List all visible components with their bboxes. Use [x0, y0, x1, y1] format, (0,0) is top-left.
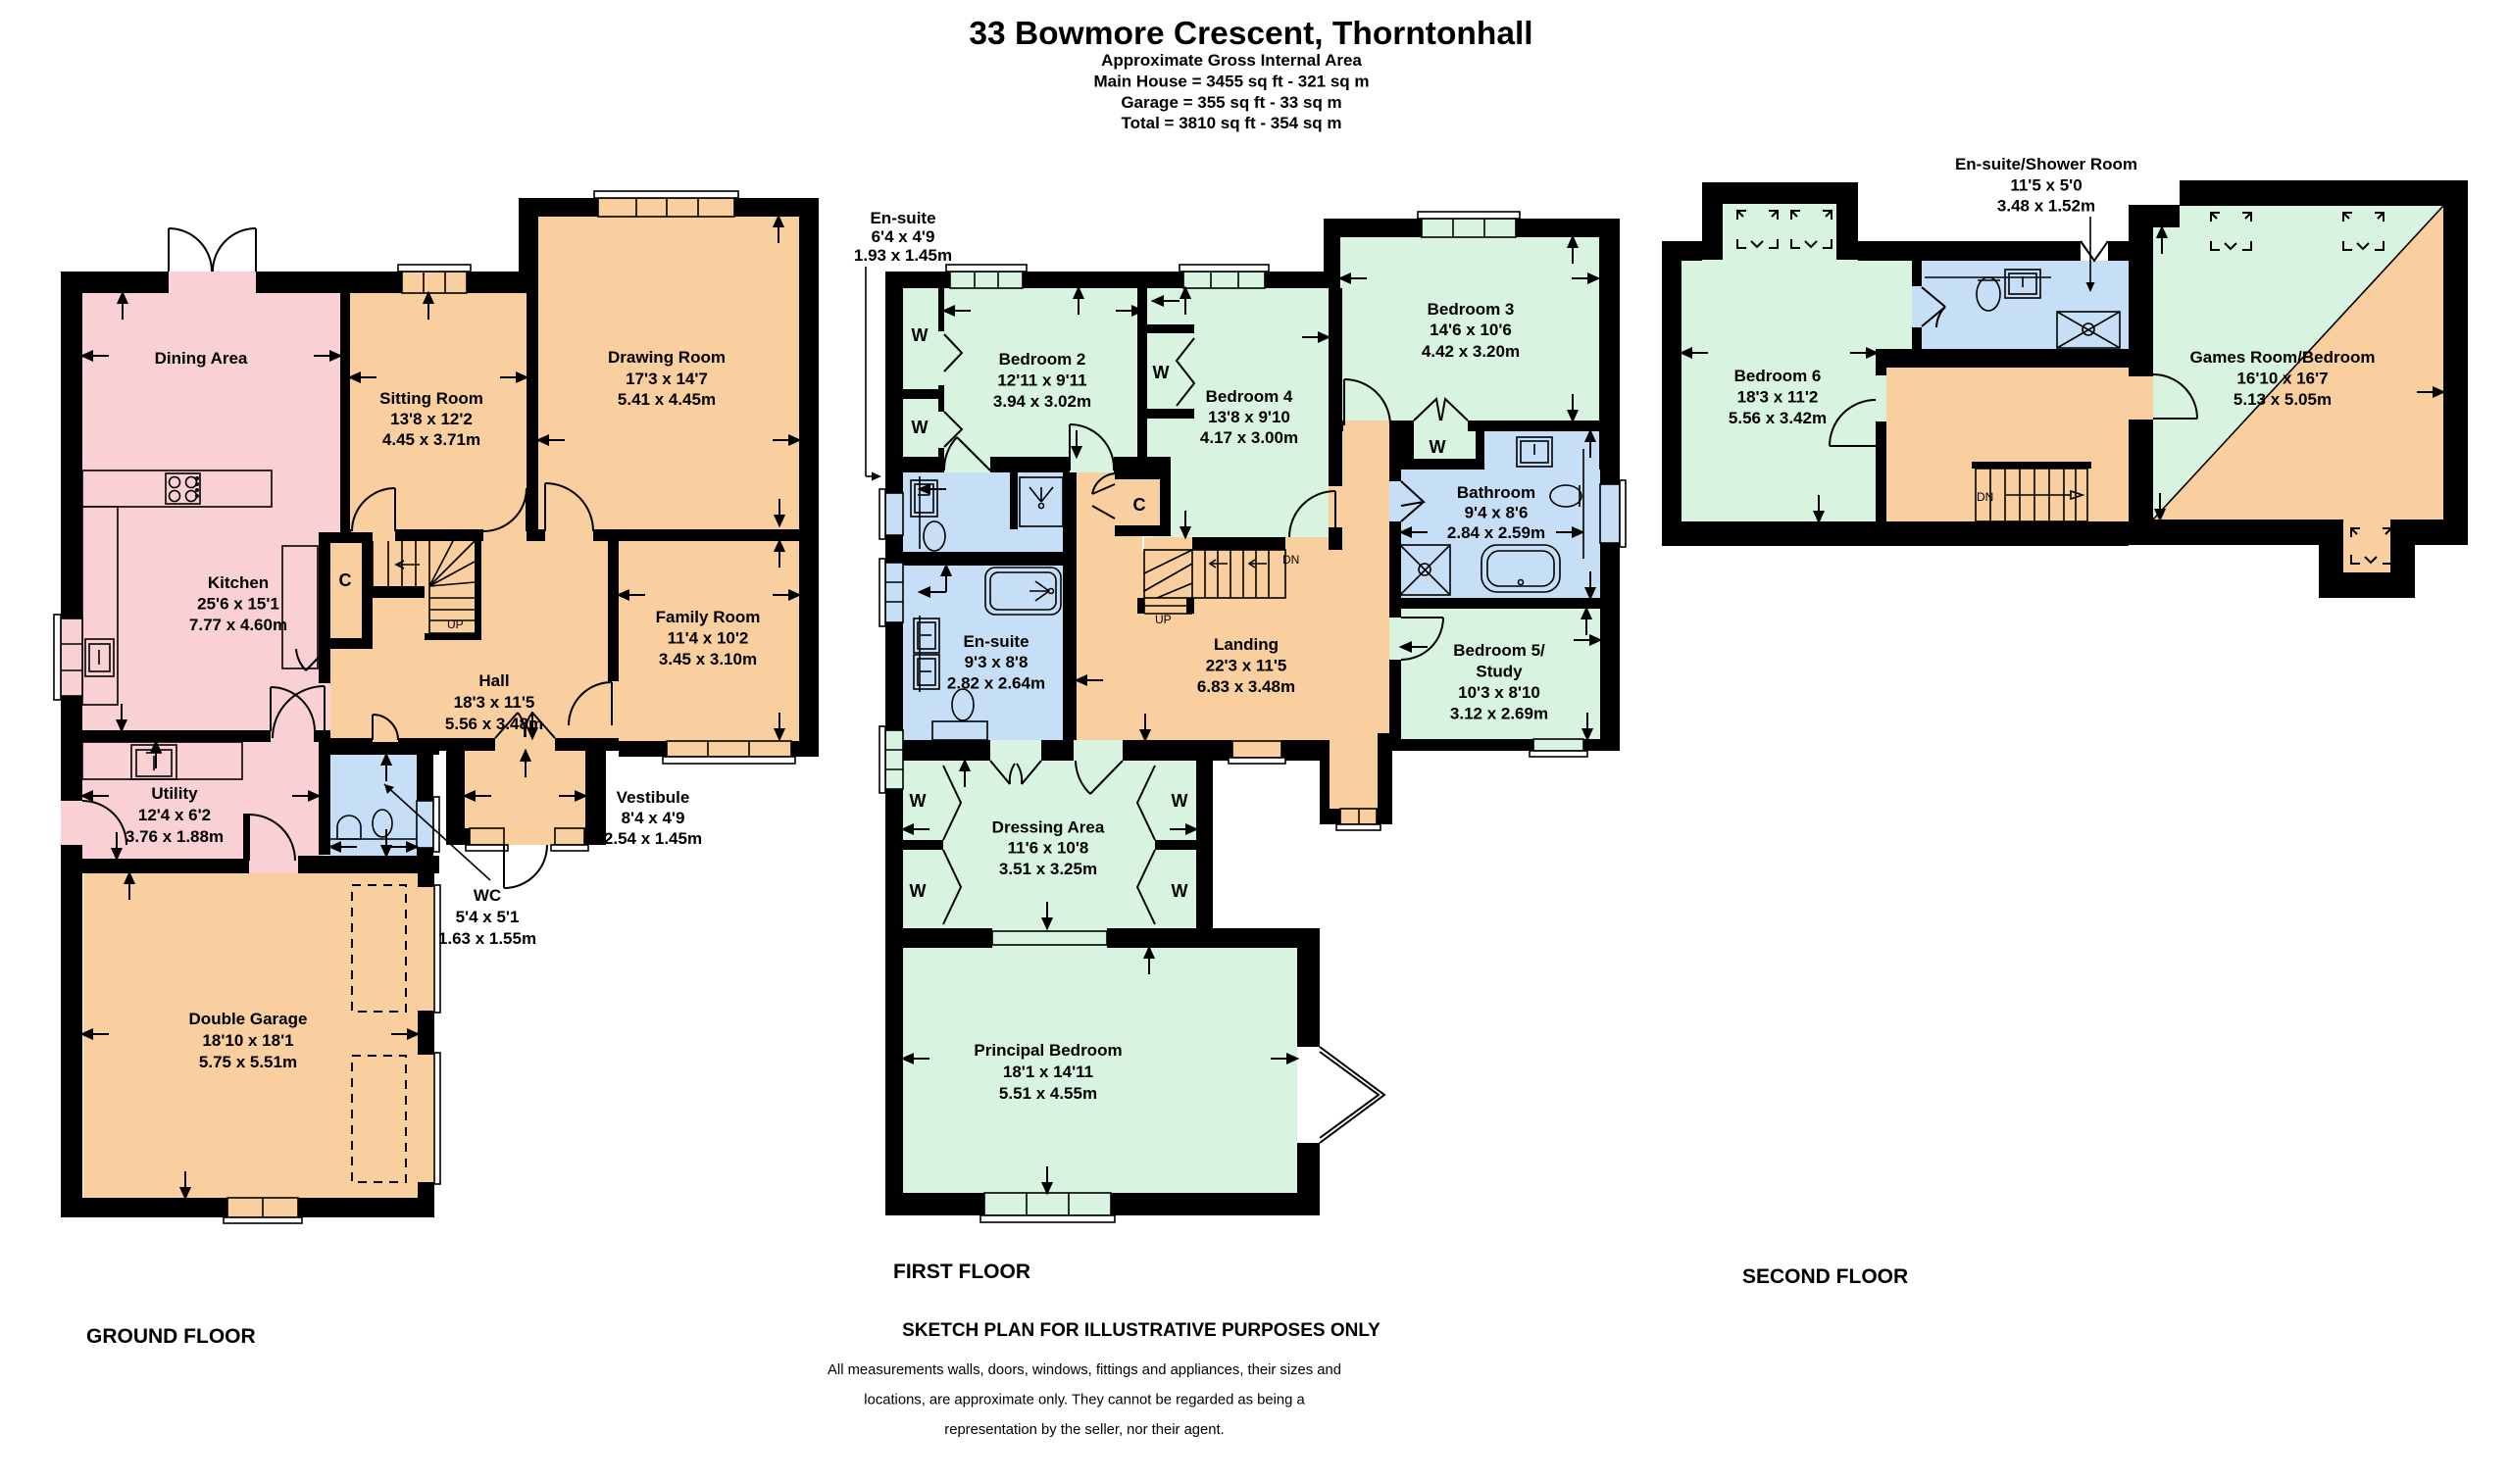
svg-text:18'1 x 14'11: 18'1 x 14'11 [1003, 1063, 1093, 1081]
svg-text:Garage = 355 sq ft - 33 sq m: Garage = 355 sq ft - 33 sq m [1121, 93, 1341, 112]
svg-text:13'8 x 9'10: 13'8 x 9'10 [1208, 408, 1290, 426]
svg-text:W: W [1430, 437, 1446, 457]
svg-text:W: W [1153, 363, 1170, 382]
svg-text:UP: UP [447, 618, 464, 631]
svg-text:11'5 x 5'0: 11'5 x 5'0 [2010, 176, 2082, 195]
svg-text:SECOND FLOOR: SECOND FLOOR [1742, 1265, 1908, 1288]
svg-text:5.41 x 4.45m: 5.41 x 4.45m [618, 390, 716, 409]
svg-text:Kitchen: Kitchen [208, 573, 269, 592]
svg-text:FIRST FLOOR: FIRST FLOOR [893, 1261, 1030, 1283]
svg-text:10'3 x 8'10: 10'3 x 8'10 [1458, 683, 1540, 702]
svg-text:W: W [1172, 791, 1188, 811]
svg-text:En-suite: En-suite [963, 632, 1029, 651]
svg-text:4.45 x 3.71m: 4.45 x 3.71m [382, 430, 480, 449]
svg-text:9'4 x 8'6: 9'4 x 8'6 [1465, 504, 1529, 522]
svg-text:17'3 x 14'7: 17'3 x 14'7 [626, 370, 708, 388]
svg-text:4.17 x 3.00m: 4.17 x 3.00m [1200, 428, 1298, 447]
svg-text:Bedroom 3: Bedroom 3 [1428, 300, 1515, 319]
svg-text:16'10 x 16'7: 16'10 x 16'7 [2236, 370, 2328, 388]
svg-text:5.56 x 3.42m: 5.56 x 3.42m [1729, 409, 1827, 427]
svg-text:1.63 x 1.55m: 1.63 x 1.55m [438, 929, 536, 948]
svg-text:Hall: Hall [478, 671, 509, 690]
svg-text:Family Room: Family Room [656, 608, 761, 626]
svg-text:11'4 x 10'2: 11'4 x 10'2 [668, 629, 749, 648]
svg-text:12'4 x 6'2: 12'4 x 6'2 [138, 806, 211, 824]
svg-text:Dining Area: Dining Area [155, 349, 248, 368]
svg-text:Total = 3810 sq ft - 354 sq m: Total = 3810 sq ft - 354 sq m [1121, 114, 1341, 132]
svg-text:5'4 x 5'1: 5'4 x 5'1 [456, 908, 520, 926]
svg-text:Vestibule: Vestibule [617, 788, 690, 807]
svg-text:Main House = 3455 sq ft - 321: Main House = 3455 sq ft - 321 sq m [1093, 73, 1369, 91]
svg-text:Landing: Landing [1214, 635, 1279, 654]
svg-text:Sitting Room: Sitting Room [379, 389, 483, 408]
svg-text:Games Room/Bedroom: Games Room/Bedroom [2190, 348, 2376, 367]
svg-text:6'4 x 4'9: 6'4 x 4'9 [872, 227, 935, 246]
svg-text:3.48 x 1.52m: 3.48 x 1.52m [1997, 197, 2095, 216]
svg-text:3.76 x 1.88m: 3.76 x 1.88m [125, 827, 224, 846]
svg-text:14'6 x 10'6: 14'6 x 10'6 [1430, 321, 1512, 339]
svg-text:18'3 x 11'2: 18'3 x 11'2 [1737, 388, 1819, 407]
svg-text:Bedroom 6: Bedroom 6 [1734, 367, 1822, 385]
svg-text:GROUND FLOOR: GROUND FLOOR [86, 1325, 256, 1348]
svg-text:33 Bowmore Crescent, Thorntonh: 33 Bowmore Crescent, Thorntonhall [969, 16, 1532, 52]
svg-text:W: W [1172, 881, 1188, 901]
svg-text:22'3 x 11'5: 22'3 x 11'5 [1206, 657, 1287, 675]
svg-text:Bedroom 5/: Bedroom 5/ [1453, 641, 1545, 660]
svg-text:UP: UP [1155, 613, 1172, 626]
svg-text:2.84 x 2.59m: 2.84 x 2.59m [1447, 523, 1545, 542]
svg-text:W: W [912, 325, 929, 345]
svg-text:locations, are approximate onl: locations, are approximate only. They ca… [864, 1392, 1305, 1408]
svg-text:All measurements walls, doors,: All measurements walls, doors, windows, … [828, 1362, 1341, 1378]
svg-text:WC: WC [474, 886, 501, 905]
svg-text:4.42 x 3.20m: 4.42 x 3.20m [1422, 342, 1520, 361]
svg-text:3.51 x 3.25m: 3.51 x 3.25m [999, 860, 1097, 878]
svg-text:W: W [910, 791, 927, 811]
svg-text:Principal Bedroom: Principal Bedroom [974, 1041, 1122, 1060]
svg-text:13'8 x 12'2: 13'8 x 12'2 [390, 410, 473, 428]
svg-text:5.51 x 4.55m: 5.51 x 4.55m [999, 1084, 1097, 1103]
svg-text:W: W [912, 418, 929, 437]
svg-text:C: C [1133, 495, 1146, 515]
svg-text:2.54 x 1.45m: 2.54 x 1.45m [604, 829, 702, 848]
svg-text:5.13 x 5.05m: 5.13 x 5.05m [2234, 390, 2332, 409]
svg-text:2.82 x 2.64m: 2.82 x 2.64m [947, 674, 1045, 693]
svg-text:Study: Study [1476, 663, 1523, 681]
svg-text:1.93 x 1.45m: 1.93 x 1.45m [854, 246, 952, 265]
svg-text:Dressing Area: Dressing Area [992, 818, 1105, 837]
svg-text:DN: DN [1282, 553, 1299, 567]
svg-text:11'6 x 10'8: 11'6 x 10'8 [1008, 839, 1089, 858]
svg-text:25'6 x 15'1: 25'6 x 15'1 [197, 595, 279, 614]
svg-text:Utility: Utility [151, 784, 198, 803]
svg-text:DN: DN [1977, 490, 1993, 504]
svg-text:Approximate Gross Internal Are: Approximate Gross Internal Area [1101, 51, 1362, 70]
svg-text:18'10 x 18'1: 18'10 x 18'1 [202, 1031, 293, 1050]
svg-text:Bedroom 4: Bedroom 4 [1206, 387, 1293, 406]
svg-text:6.83 x 3.48m: 6.83 x 3.48m [1197, 677, 1295, 696]
svg-text:Drawing Room: Drawing Room [608, 348, 726, 367]
svg-text:Bedroom 2: Bedroom 2 [999, 350, 1086, 369]
svg-text:18'3 x 11'5: 18'3 x 11'5 [454, 693, 535, 712]
svg-text:3.45 x 3.10m: 3.45 x 3.10m [659, 650, 757, 668]
svg-text:En-suite: En-suite [870, 209, 935, 227]
svg-text:SKETCH PLAN FOR ILLUSTRATIVE P: SKETCH PLAN FOR ILLUSTRATIVE PURPOSES ON… [902, 1320, 1380, 1341]
svg-text:C: C [339, 570, 352, 590]
svg-text:En-suite/Shower Room: En-suite/Shower Room [1955, 155, 2137, 173]
svg-text:3.94 x 3.02m: 3.94 x 3.02m [993, 392, 1091, 411]
svg-text:3.12 x 2.69m: 3.12 x 2.69m [1450, 705, 1548, 723]
svg-text:5.75 x 5.51m: 5.75 x 5.51m [199, 1053, 297, 1071]
svg-text:8'4 x 4'9: 8'4 x 4'9 [622, 809, 685, 827]
svg-text:Bathroom: Bathroom [1457, 483, 1535, 502]
svg-text:12'11 x 9'11: 12'11 x 9'11 [997, 371, 1086, 390]
svg-text:representation by the seller,: representation by the seller, nor their … [944, 1422, 1224, 1438]
svg-text:7.77 x 4.60m: 7.77 x 4.60m [189, 616, 287, 634]
svg-text:Double Garage: Double Garage [189, 1010, 308, 1028]
svg-text:W: W [910, 881, 927, 901]
svg-text:9'3 x 8'8: 9'3 x 8'8 [965, 653, 1029, 671]
